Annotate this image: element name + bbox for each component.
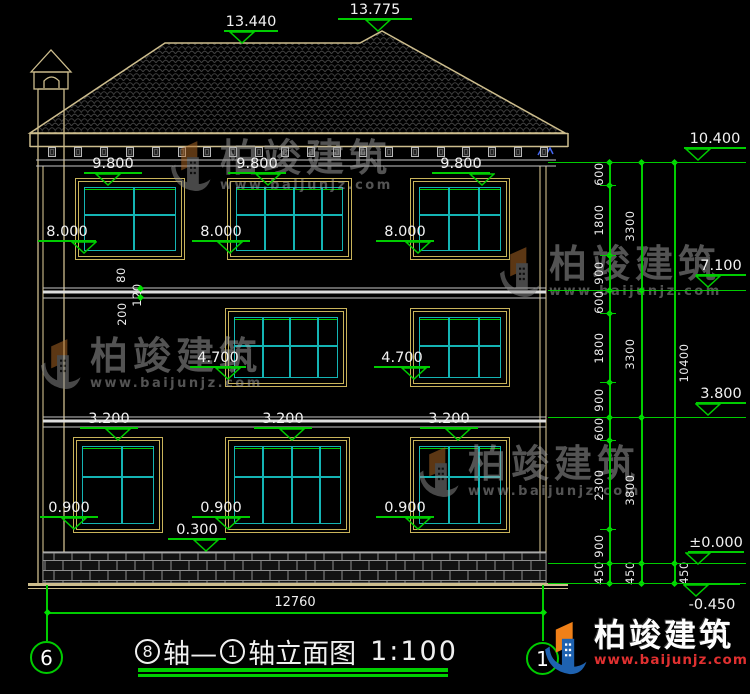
title-scale: 1:100 [370,636,458,667]
window-transom [237,214,342,216]
window-mullion [317,318,319,377]
roof [30,31,565,133]
eave-bracket-inner [50,149,54,155]
title-underline-2 [138,674,448,677]
eave-bracket [333,147,341,157]
level-marker: 8.000 [376,224,434,240]
level-marker: 7.100 [696,258,746,274]
dimension-label-text: 80 [114,267,128,283]
axis-bubble-left-label: 6 [40,646,53,670]
eave-bracket [359,147,367,157]
level-marker: 8.000 [192,224,250,240]
eave-bracket-inner [335,149,339,155]
window-mullion [448,318,450,377]
extension-line [548,563,746,564]
dimension-label-text: 600 [592,417,606,440]
level-text: 0.900 [376,500,434,516]
window-mullion [291,447,293,523]
level-text: 3.200 [80,411,138,427]
level-marker: 13.775 [338,2,412,18]
window-transom [420,345,500,347]
level-marker: 3.800 [696,386,746,402]
dimension-label-text: 2300 [592,469,606,500]
level-text: 8.000 [376,224,434,240]
level-text: -0.450 [684,597,740,613]
level-marker: ±0.000 [688,535,744,551]
dimension-label-text: 600 [592,290,606,313]
overall-dimension-line [47,612,543,614]
level-marker: 0.300 [168,522,226,538]
eave-bracket-inner [439,149,443,155]
eave-bracket-inner [231,149,235,155]
window-mullion [448,447,450,523]
eave-bracket [203,147,211,157]
title-underline-1 [138,668,448,672]
eave-bracket [514,147,522,157]
dimension-label-text: 1800 [592,332,606,363]
window-mullion [293,188,295,250]
axis-circle-1: 1 [220,639,245,664]
eave-bracket [307,147,315,157]
dimension-label-text: 1800 [592,204,606,235]
extension-line [600,382,616,383]
dimension-chain-line [674,162,676,583]
dimension-label-text: 450 [592,561,606,584]
level-marker: 9.800 [84,156,142,172]
eave-bracket-inner [128,149,132,155]
elevation-drawing-canvas: 柏竣建筑www.baijunjz.com柏竣建筑www.baijunjz.com… [0,0,750,694]
dimension-label-text: 3300 [623,338,637,369]
level-text: 8.000 [38,224,96,240]
window-lintel-line [420,189,500,190]
window-glazing [234,446,341,524]
window-mullion [133,188,135,250]
extension-line [600,185,616,186]
level-marker: 3.200 [254,411,312,427]
window-inner-frame [230,181,349,257]
extension-line [548,162,746,163]
eave-bracket-inner [542,149,546,155]
level-text: 3.200 [254,411,312,427]
overall-dimension-label: 12760 [263,595,327,610]
level-text: 10.400 [684,131,746,147]
level-text: ±0.000 [688,535,744,551]
window-mullion [448,188,450,250]
window-mullion [319,447,321,523]
level-text: 8.000 [192,224,250,240]
eave-bracket-inner [154,149,158,155]
window-transom [85,214,175,216]
eave-bracket-inner [283,149,287,155]
eave-bracket-inner [387,149,391,155]
level-text: 9.800 [228,156,286,172]
window [227,178,352,260]
eave-bracket [411,147,419,157]
eave-bracket-inner [76,149,80,155]
eave-bracket [385,147,393,157]
level-text: 13.440 [224,14,278,30]
window-lintel-line [85,189,175,190]
extension-line [548,290,746,291]
eave-band [30,133,568,147]
level-marker: 10.400 [684,131,746,147]
eave-bracket [152,147,160,157]
dimension-label-text: 900 [592,534,606,557]
eave-bracket-inner [205,149,209,155]
level-text: 3.200 [420,411,478,427]
dimension-label-text: 900 [592,261,606,284]
window-mullion [121,447,123,523]
level-text: 9.800 [84,156,142,172]
extension-line [600,440,616,441]
brand-name: 柏竣建筑 [594,618,748,652]
eave-bracket-inner [102,149,106,155]
level-text: 0.300 [168,522,226,538]
dimension-chain-line [609,162,611,583]
level-marker: 0.900 [376,500,434,516]
window-transom [235,345,337,347]
brand-logo-icon [542,618,588,678]
dimension-label-text: 450 [623,561,637,584]
level-text: 13.775 [338,2,412,18]
eave-bracket-inner [464,149,468,155]
extension-line [600,313,616,314]
window-lintel-line [235,319,337,320]
window-mullion [262,318,264,377]
window-lintel-line [237,189,342,190]
drawing-title: 8 轴— 1 轴立面图 1:100 [110,632,480,671]
window [225,437,350,533]
level-text: 0.900 [192,500,250,516]
title-sep: 轴— [163,632,217,671]
level-marker: 9.800 [228,156,286,172]
level-marker: 3.200 [420,411,478,427]
level-marker: 0.900 [40,500,98,516]
extension-line [548,417,746,418]
dimension-chain-line [641,162,643,583]
window-lintel-line [420,319,500,320]
window-mullion [478,447,480,523]
window-mullion [478,188,480,250]
eave-bracket-inner [257,149,261,155]
eave-bracket [540,147,548,157]
window-transom [83,476,153,478]
stone-base [43,553,546,583]
level-text: 3.800 [696,386,746,402]
brand-logo: 柏竣建筑 www.baijunjz.com [542,618,748,678]
window [225,308,347,387]
dimension-label-text: 10400 [677,343,691,382]
level-text: 4.700 [190,350,246,366]
eave-bracket [74,147,82,157]
eave-bracket-inner [516,149,520,155]
level-marker: 4.700 [190,350,246,366]
dimension-label-text: 3800 [623,474,637,505]
window-inner-frame [413,311,507,384]
window-glazing [419,317,501,378]
dimension-label-text: 200 [115,302,129,325]
window-mullion [478,318,480,377]
axis-bubble-left: 6 [30,641,63,674]
window-lintel-line [235,448,340,449]
eave-bracket-inner [361,149,365,155]
dimension-label-text: 600 [592,162,606,185]
window-transom [235,476,340,478]
window-mullion [262,447,264,523]
window-mullion [289,318,291,377]
level-marker: 8.000 [38,224,96,240]
dimension-label-text: 900 [592,388,606,411]
eave-bracket-inner [309,149,313,155]
window-inner-frame [228,311,344,384]
window-glazing [234,317,338,378]
level-marker: 13.440 [224,14,278,30]
window-transom [420,476,500,478]
window-mullion [264,188,266,250]
level-marker: 0.900 [192,500,250,516]
extension-line [600,529,616,530]
axis-circle-8: 8 [135,639,160,664]
level-text: 9.800 [432,156,490,172]
dimension-label-text: 3300 [623,210,637,241]
level-text: 0.900 [40,500,98,516]
window-mullion [321,188,323,250]
window-glazing [84,187,176,251]
eave-bracket-inner [180,149,184,155]
extension-line [600,255,616,256]
eave-bracket-inner [413,149,417,155]
level-marker: 9.800 [432,156,490,172]
level-marker: -0.450 [684,583,740,613]
building-linework [0,0,750,694]
window-lintel-line [83,448,153,449]
window-transom [420,214,500,216]
window-lintel-line [420,448,500,449]
eave-bracket [178,147,186,157]
level-text: 4.700 [374,350,430,366]
ground-line [28,585,568,589]
title-suffix: 轴立面图 [248,632,356,671]
level-text: 7.100 [696,258,746,274]
level-marker: 3.200 [80,411,138,427]
window-glazing [236,187,343,251]
brand-url: www.baijunjz.com [594,652,748,668]
eave-bracket-inner [490,149,494,155]
level-marker: 4.700 [374,350,430,366]
eave-bracket [48,147,56,157]
